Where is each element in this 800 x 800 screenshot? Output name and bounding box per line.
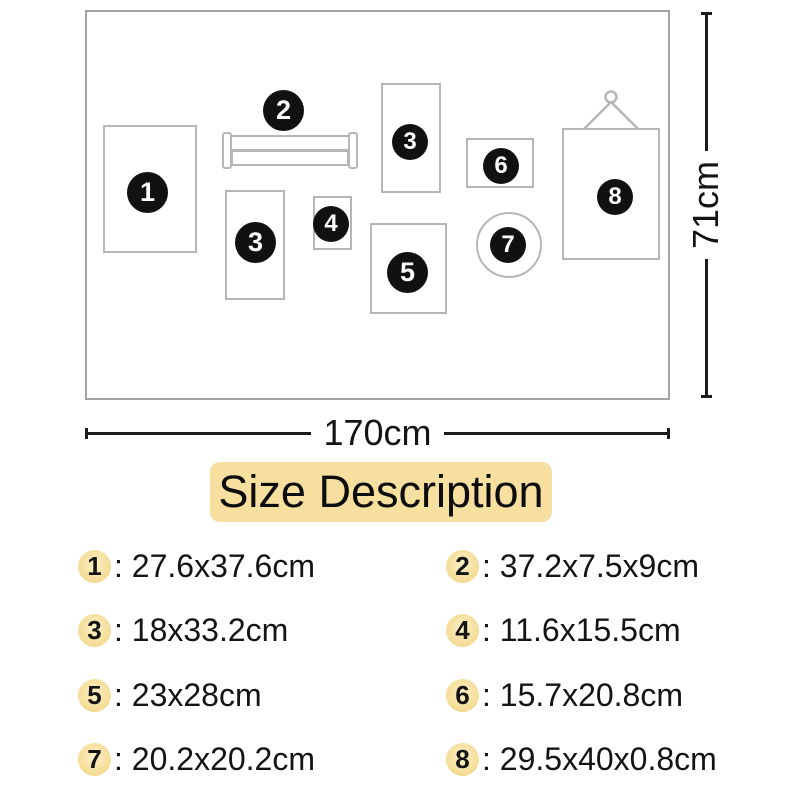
page-title: Size Description (218, 466, 543, 518)
shelf-2-rail (229, 135, 351, 151)
badge-4: 4 (313, 206, 349, 242)
width-dimension-label: 170cm (323, 412, 431, 454)
badge-6: 6 (483, 148, 519, 184)
list-item: 6 : 15.7x20.8cm (446, 677, 738, 714)
separator: : (114, 612, 132, 648)
item-size-value: 29.5x40x0.8cm (500, 741, 717, 777)
item-size-value: 11.6x15.5cm (500, 612, 681, 648)
shelf-2-right-cap (348, 132, 358, 169)
product-size-diagram: 1 2 3 3 4 5 6 7 8 170cm 71cm Size Descri… (0, 0, 800, 800)
item-size-value: 23x28cm (132, 677, 262, 713)
list-item: 3 : 18x33.2cm (78, 612, 446, 649)
badge-7: 7 (490, 227, 526, 263)
item-number-chip: 6 (446, 679, 479, 712)
badge-1: 1 (127, 172, 168, 213)
item-number-chip: 3 (78, 614, 111, 647)
list-item: 4 : 11.6x15.5cm (446, 612, 738, 649)
item-number-chip: 2 (446, 550, 479, 583)
width-dimension-line: 170cm (85, 416, 670, 450)
item-size-value: 27.6x37.6cm (132, 548, 315, 584)
item-size-value: 18x33.2cm (132, 612, 289, 648)
list-item: 8 : 29.5x40x0.8cm (446, 741, 738, 778)
shelf-2-left-cap (222, 132, 232, 169)
size-description-header: Size Description (210, 462, 552, 522)
list-item: 1 : 27.6x37.6cm (78, 548, 446, 585)
dimension-tick (667, 428, 670, 439)
size-list: 1 : 27.6x37.6cm 2 : 37.2x7.5x9cm 3 : 18x… (78, 534, 738, 792)
hanger-wire-icon (562, 88, 660, 130)
item-size-value: 20.2x20.2cm (132, 741, 315, 777)
separator: : (482, 548, 500, 584)
separator: : (482, 677, 500, 713)
badge-3-lower: 3 (235, 222, 276, 263)
item-number-chip: 1 (78, 550, 111, 583)
item-size-value: 37.2x7.5x9cm (500, 548, 699, 584)
height-dimension-line: 71cm (686, 12, 726, 398)
dimension-segment (705, 15, 708, 151)
item-size-value: 15.7x20.8cm (500, 677, 683, 713)
list-item: 5 : 23x28cm (78, 677, 446, 714)
item-number-chip: 5 (78, 679, 111, 712)
dimension-tick (701, 395, 712, 398)
badge-2: 2 (263, 90, 304, 131)
badge-8: 8 (597, 179, 633, 215)
separator: : (482, 612, 500, 648)
item-number-chip: 7 (78, 743, 111, 776)
height-dimension-label: 71cm (685, 161, 727, 249)
item-number-chip: 4 (446, 614, 479, 647)
dimension-segment (444, 432, 667, 435)
separator: : (114, 548, 132, 584)
item-number-chip: 8 (446, 743, 479, 776)
dimension-segment (705, 259, 708, 395)
shelf-2-front (231, 150, 349, 166)
separator: : (114, 677, 132, 713)
badge-3-upper: 3 (392, 124, 428, 160)
separator: : (482, 741, 500, 777)
dimension-segment (88, 432, 311, 435)
badge-5: 5 (387, 252, 428, 293)
separator: : (114, 741, 132, 777)
list-item: 2 : 37.2x7.5x9cm (446, 548, 738, 585)
list-item: 7 : 20.2x20.2cm (78, 741, 446, 778)
